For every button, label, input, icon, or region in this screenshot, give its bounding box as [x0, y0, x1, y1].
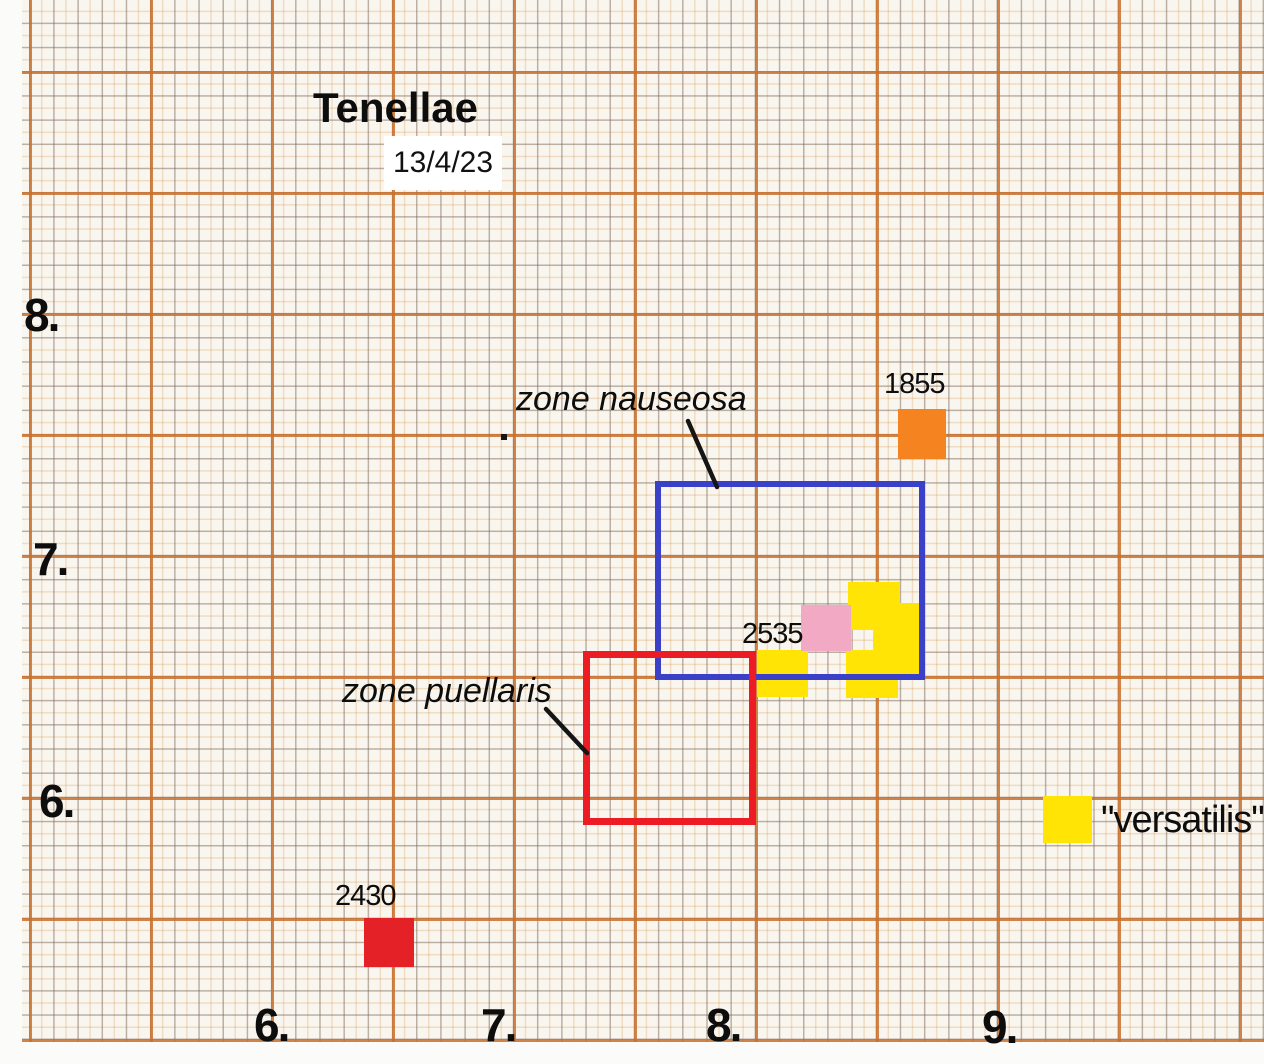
axis-tick-8: 8.: [706, 998, 740, 1052]
zone-nauseosa-label: zone nauseosa: [516, 380, 747, 419]
axis-tick-7: 7.: [481, 998, 515, 1052]
date-label-box: 13/4/23: [384, 136, 502, 190]
ink-dot: [501, 434, 507, 440]
date-label: 13/4/23: [393, 146, 493, 180]
axis-tick-7: 7.: [33, 532, 67, 586]
point-2430: [364, 918, 414, 967]
point-label-2430: 2430: [335, 880, 396, 913]
zone-puellaris-label: zone puellaris: [342, 672, 552, 711]
chart-title: Tenellae: [313, 84, 478, 132]
point-label-1855: 1855: [884, 368, 945, 401]
graph-paper: [22, 0, 1264, 1042]
axis-tick-9: 9.: [982, 1000, 1016, 1054]
legend-label: "versatilis": [1101, 799, 1264, 842]
point-1855: [898, 409, 946, 459]
specimen-map-chart: Tenellae 13/4/23 6.7.8.9.8.7.6.253518552…: [0, 0, 1264, 1064]
axis-tick-6: 6.: [39, 774, 73, 828]
zone-puellaris-rect: [583, 651, 756, 825]
axis-tick-8: 8.: [24, 288, 58, 342]
axis-tick-6: 6.: [254, 998, 288, 1052]
point-label-2535: 2535: [742, 618, 803, 651]
legend-swatch-versatilis: [1043, 796, 1092, 843]
